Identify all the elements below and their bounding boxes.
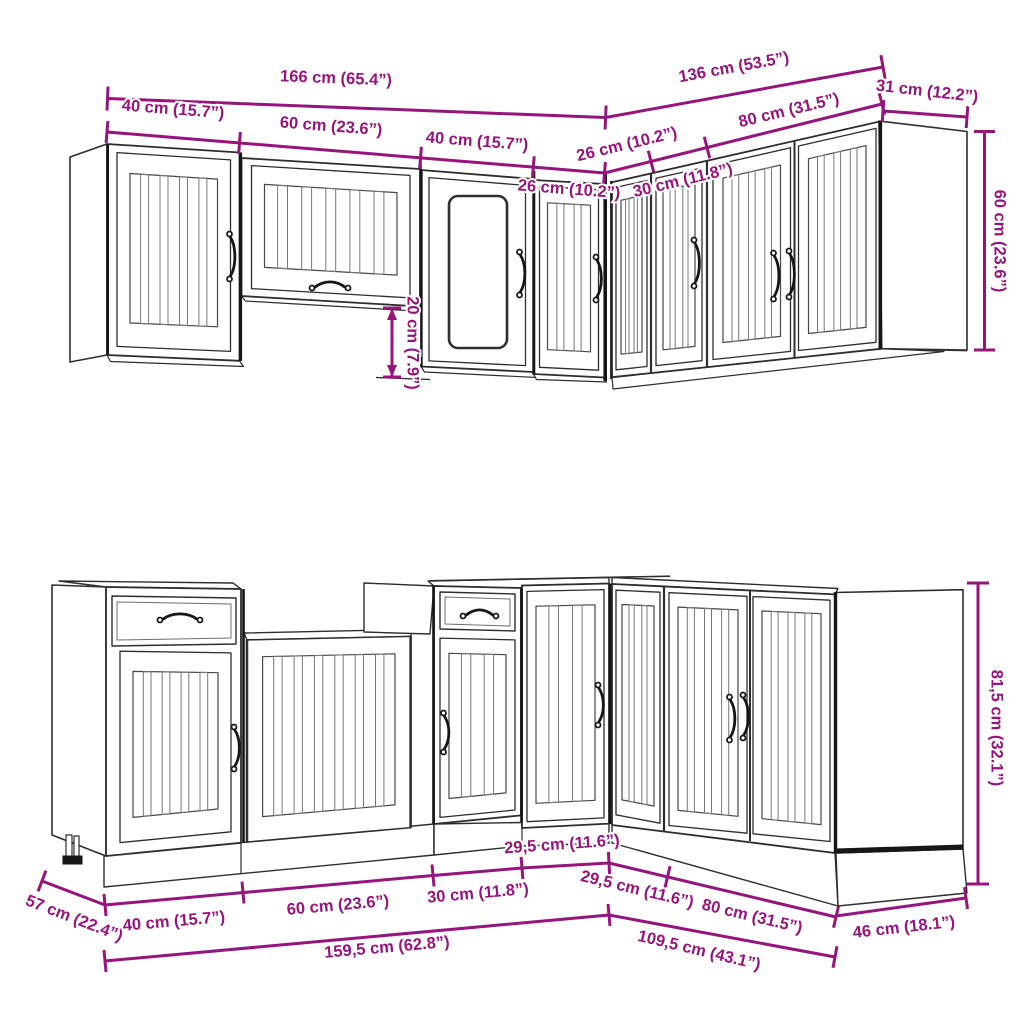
svg-text:81,5 cm (32.1”): 81,5 cm (32.1”) xyxy=(988,670,1006,786)
svg-text:60 cm (23.6”): 60 cm (23.6”) xyxy=(991,190,1009,293)
svg-text:20 cm (7.9”): 20 cm (7.9”) xyxy=(404,296,422,390)
